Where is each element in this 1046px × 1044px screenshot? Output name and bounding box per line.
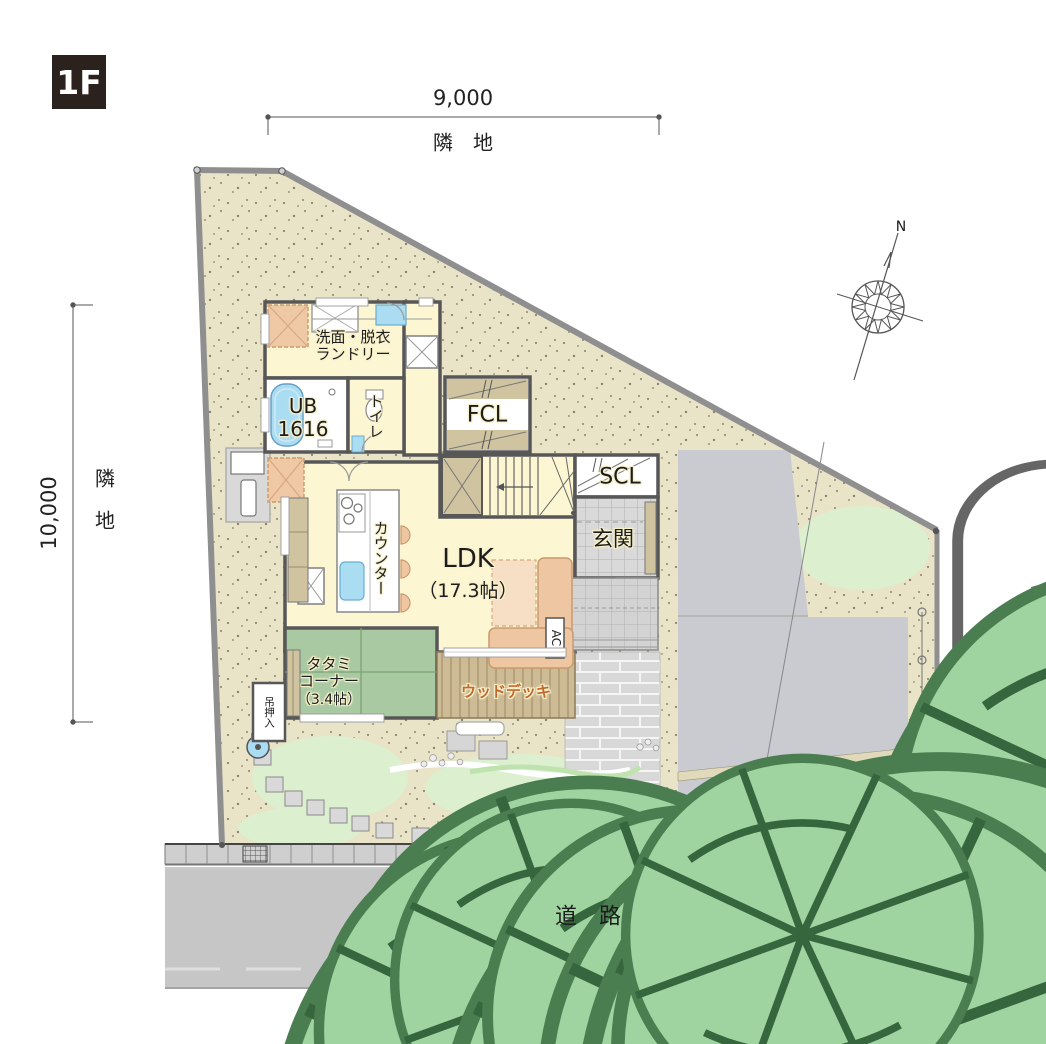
laundry-sink: [376, 305, 406, 325]
tatami-corner-label: タタミコーナー（3.4帖）: [297, 656, 361, 708]
dining-chairs: [401, 526, 410, 612]
hanging-closet-label: 吊押入: [263, 696, 275, 728]
ac-label: AC: [548, 630, 562, 646]
wood-deck-label: ウッドデッキ: [461, 683, 551, 700]
compass-north-label: N: [896, 219, 906, 235]
porch: [565, 578, 658, 650]
toilet-label: トイレ: [366, 394, 383, 439]
ldk-label: LDK（17.3帖）: [418, 545, 517, 605]
floor-badge: 1F: [52, 55, 106, 109]
compass-rose: [837, 233, 923, 380]
water-heater: [241, 480, 256, 516]
scl-label: SCL: [599, 464, 641, 489]
site-plan-drawing: [0, 0, 1046, 1044]
counter-label: カウンター: [371, 521, 388, 596]
laundry-room-label: 洗面・脱衣ランドリー: [315, 329, 390, 364]
garden-bench: [456, 722, 504, 735]
equipment-pad: [226, 448, 270, 522]
site-plan-page: 1F 9,000 隣 地 10,000 隣地 N 洗面・脱衣ランドリー UB16…: [0, 0, 1046, 1044]
entrance-label: 玄関: [592, 527, 634, 551]
dim-left-neighbor-label: 隣地: [92, 468, 115, 552]
fcl-label: FCL: [467, 402, 507, 427]
dim-left-value: 10,000: [37, 476, 61, 549]
road-label: 道 路: [555, 904, 621, 929]
kitchen-sink: [340, 562, 364, 600]
dim-top-value: 9,000: [433, 86, 493, 110]
bathroom-label: UB1616: [278, 395, 329, 441]
wall-cabinet: [288, 498, 308, 602]
hallway: [404, 302, 440, 455]
dim-top-neighbor-label: 隣 地: [433, 132, 493, 155]
ac-outdoor-unit: [231, 452, 264, 474]
drain-grate: [243, 846, 267, 862]
